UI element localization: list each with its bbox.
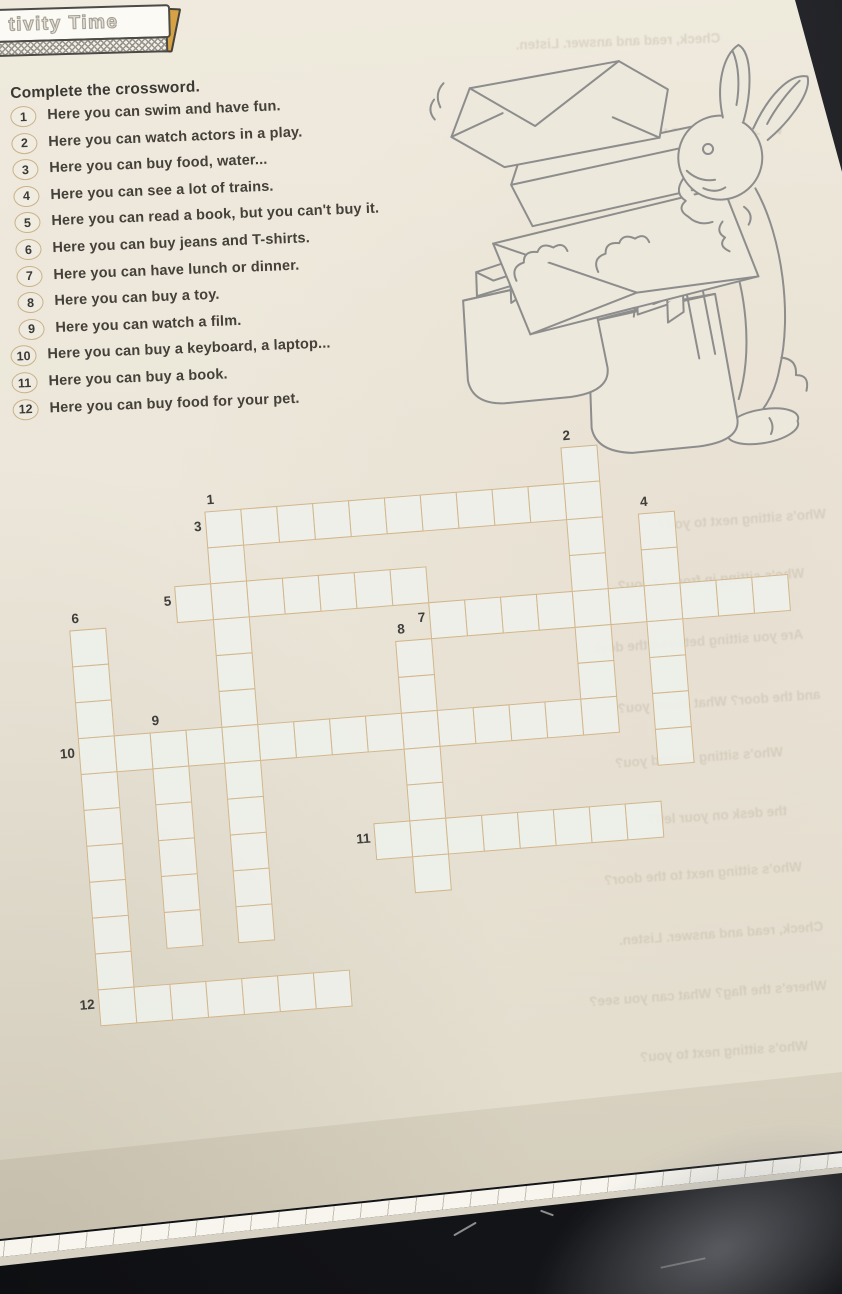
crossword-cell — [536, 591, 576, 631]
crossword-cell — [276, 503, 316, 543]
crossword-cell — [210, 580, 250, 620]
crossword-cell — [473, 704, 513, 744]
crossword-number-label: 11 — [348, 831, 371, 848]
crossword-cell — [401, 710, 441, 750]
crossword-cell — [204, 509, 244, 549]
crossword-cell — [75, 699, 115, 739]
clue-number: 4 — [13, 185, 40, 207]
crossword-cell — [652, 690, 692, 730]
crossword-number-label: 4 — [639, 494, 648, 510]
clue-number: 6 — [15, 239, 42, 261]
crossword-cell — [329, 716, 369, 756]
crossword-number-label: 2 — [562, 428, 571, 444]
crossword-number-label: 3 — [179, 519, 202, 536]
crossword-cell — [646, 618, 686, 658]
crossword-cell — [227, 796, 267, 836]
crossword-cell — [575, 624, 615, 664]
crossword-cell — [114, 732, 154, 772]
crossword-cell — [164, 909, 204, 949]
crossword-cell — [72, 664, 112, 704]
crossword-cell — [572, 588, 612, 628]
clue-number: 3 — [12, 159, 39, 181]
clue-text: Here you can have lunch or dinner. — [53, 255, 300, 284]
crossword-cell — [544, 699, 584, 739]
crossword-cell — [158, 837, 198, 877]
crossword-cell — [174, 583, 214, 623]
clue-text: Here you can buy a book. — [48, 364, 228, 390]
crossword-cell — [553, 806, 593, 846]
crossword-cell — [257, 721, 297, 761]
crossword-cell — [456, 489, 496, 529]
crossword-cell — [216, 652, 256, 692]
crossword-cell — [365, 713, 405, 753]
crossword-number-label: 6 — [71, 611, 80, 627]
crossword-cell — [409, 818, 449, 858]
crossword-cell — [219, 688, 259, 728]
clue-text: Here you can watch actors in a play. — [48, 122, 303, 151]
crossword-cell — [293, 718, 333, 758]
crossword-number-label: 1 — [206, 492, 215, 508]
crossword-cell — [150, 730, 190, 770]
crossword-cell — [83, 807, 123, 847]
clue-number: 11 — [11, 372, 38, 394]
crossword-cell — [420, 492, 460, 532]
crossword-cell — [412, 853, 452, 893]
clue-number: 10 — [10, 345, 37, 367]
crossword-cell — [92, 915, 132, 955]
crossword-cell — [89, 879, 129, 919]
crossword-cell — [282, 575, 322, 615]
crossword-cell — [491, 486, 531, 526]
rabbit-ear — [752, 76, 811, 140]
crossword-cell — [437, 707, 477, 747]
crossword-cell — [240, 506, 280, 546]
crossword-cell — [98, 987, 138, 1027]
crossword-number-label: 10 — [52, 746, 75, 763]
crossword-cell — [348, 497, 388, 537]
clue-text: Here you can see a lot of trains. — [50, 176, 274, 204]
crossword-cell — [78, 735, 118, 775]
crossword-cell — [313, 970, 353, 1010]
crossword-cell — [81, 771, 121, 811]
crossword-cell — [644, 582, 684, 622]
crossword-cell — [580, 696, 620, 736]
crossword-cell — [527, 483, 567, 523]
crossword-cell — [169, 981, 209, 1021]
crossword-cell — [406, 782, 446, 822]
crossword-cell — [641, 547, 681, 587]
clue-number: 2 — [11, 132, 38, 154]
photo-of-workbook-page: Check, read and answer. Listen.Where's t… — [0, 0, 842, 1294]
crossword-cell — [241, 975, 281, 1015]
crossword-cell — [246, 578, 286, 618]
crossword-cell — [428, 599, 468, 639]
crossword-cell — [638, 511, 678, 551]
crossword-cell — [404, 746, 444, 786]
crossword-cell — [207, 545, 247, 585]
crossword-cell — [155, 801, 195, 841]
clue-text: Here you can buy food for your pet. — [49, 388, 300, 417]
crossword-cell — [608, 585, 648, 625]
workbook-page: Check, read and answer. Listen.Where's t… — [0, 0, 842, 1294]
clue-text: Here you can buy a keyboard, a laptop... — [47, 334, 331, 364]
crossword-cell — [715, 577, 755, 617]
crossword-cell — [233, 868, 273, 908]
clue-number: 9 — [18, 318, 45, 340]
clue-number: 12 — [12, 398, 39, 420]
crossword-cell — [517, 809, 557, 849]
clue-number: 5 — [14, 212, 41, 234]
crossword-cell — [649, 654, 689, 694]
clue-list: 1Here you can swim and have fun.2Here yo… — [0, 86, 552, 436]
crossword-cell — [230, 832, 270, 872]
crossword-cell — [133, 984, 173, 1024]
crossword-cell — [86, 843, 126, 883]
clue-number: 8 — [17, 292, 44, 314]
rabbit-tail — [781, 357, 807, 392]
crossword-cell — [560, 445, 600, 485]
crossword-cell — [95, 951, 135, 991]
crossword-cell — [205, 978, 245, 1018]
clue-text: Here you can buy a toy. — [54, 285, 220, 311]
crossword-cell — [185, 727, 225, 767]
crossword-cell — [508, 701, 548, 741]
crossword-grid: 123456789101112 — [58, 431, 821, 1062]
clue-text: Here you can buy jeans and T-shirts. — [52, 228, 310, 257]
crossword-cell — [318, 572, 358, 612]
crossword-cell — [161, 873, 201, 913]
crossword-cell — [569, 552, 609, 592]
crossword-number-label: 7 — [403, 610, 426, 627]
crossword-cell — [395, 638, 435, 678]
crossword-number-label: 9 — [151, 713, 160, 729]
crossword-cell — [389, 566, 429, 606]
show-through-text: Who's sitting next to you? — [612, 1036, 837, 1067]
crossword-cell — [751, 574, 791, 614]
crossword-cell — [481, 812, 521, 852]
crossword-number-label: 12 — [72, 997, 95, 1014]
crossword-cell — [589, 803, 629, 843]
clue-text: Here you can watch a film. — [55, 311, 242, 338]
crossword-cell — [464, 597, 504, 637]
crossword-cell — [445, 815, 485, 855]
crossword-cell — [312, 500, 352, 540]
crossword-cell — [221, 724, 261, 764]
crossword-cell — [235, 903, 275, 943]
crossword-cell — [354, 569, 394, 609]
crossword-cell — [373, 820, 413, 860]
clue-number: 7 — [16, 265, 43, 287]
crossword-cell — [500, 594, 540, 634]
crossword-cell — [69, 628, 109, 668]
crossword-cell — [277, 972, 317, 1012]
crossword-cell — [679, 580, 719, 620]
crossword-cell — [563, 480, 603, 520]
crossword-number-label: 8 — [397, 621, 406, 637]
crossword-cell — [577, 660, 617, 700]
crossword-cell — [384, 495, 424, 535]
crossword-number-label: 5 — [149, 593, 172, 610]
crossword-cell — [655, 726, 695, 766]
desk-scratch — [453, 1222, 477, 1237]
crossword-cell — [152, 766, 192, 806]
crossword-cell — [398, 674, 438, 714]
clue-number: 1 — [10, 106, 37, 128]
crossword-cell — [566, 516, 606, 556]
crossword-cell — [224, 760, 264, 800]
crossword-cell — [213, 616, 253, 656]
clue-text: Here you can buy food, water... — [49, 150, 268, 178]
crossword-cell — [625, 801, 665, 841]
